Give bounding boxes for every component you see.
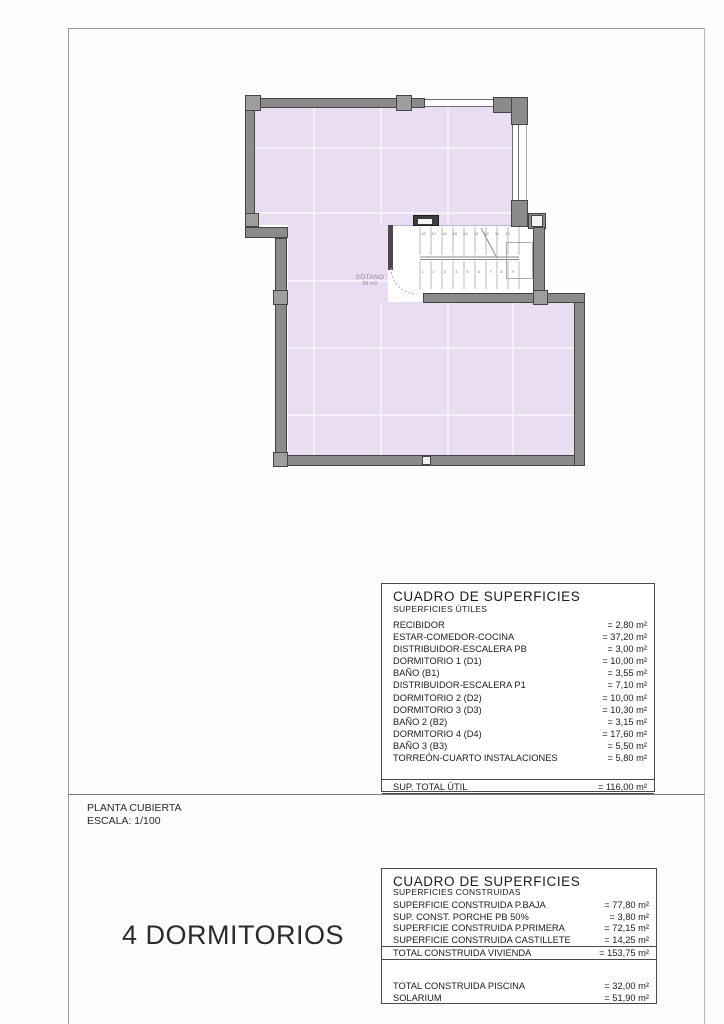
- roof-tile-line: [288, 347, 575, 349]
- roof-tile-line: [313, 107, 315, 225]
- table-rows-extra: TOTAL CONSTRUIDA PISCINA = 32,00 m² SOLA…: [393, 981, 649, 1004]
- row-label: BAÑO 3 (B3): [393, 740, 447, 752]
- table-title: CUADRO DE SUPERFICIES: [393, 589, 580, 604]
- plan-title: PLANTA CUBIERTA: [87, 802, 182, 815]
- table-row: DORMITORIO 2 (D2) = 10,00 m²: [393, 692, 647, 704]
- roof-tile-line: [380, 302, 382, 455]
- table-subtitle: SUPERFICIES ÚTILES: [393, 604, 487, 614]
- sheet-border-left: [68, 28, 69, 1024]
- table-row: RECIBIDOR = 2,80 m²: [393, 619, 647, 631]
- table-row: SUPERFICIE CONSTRUIDA P.PRIMERA = 72,15 …: [393, 923, 649, 935]
- column-post: [245, 95, 261, 111]
- row-label: TORREÓN-CUARTO INSTALACIONES: [393, 752, 558, 764]
- row-value: = 2,80 m²: [607, 619, 647, 631]
- row-label: DORMITORIO 1 (D1): [393, 655, 482, 667]
- row-label: RECIBIDOR: [393, 619, 445, 631]
- roof-tile-line: [288, 414, 575, 416]
- row-label: BAÑO 2 (B2): [393, 716, 447, 728]
- row-label: DORMITORIO 2 (D2): [393, 692, 482, 704]
- row-label: DORMITORIO 4 (D4): [393, 728, 482, 740]
- row-value: = 17,60 m²: [602, 728, 647, 740]
- table-row: DISTRIBUIDOR-ESCALERA P1 = 7,10 m²: [393, 679, 647, 691]
- table-rows: RECIBIDOR = 2,80 m² ESTAR-COMEDOR-COCINA…: [393, 619, 647, 764]
- total-value: = 153,75 m²: [599, 948, 649, 958]
- row-label: SUPERFICIE CONSTRUIDA P.PRIMERA: [393, 923, 565, 935]
- row-label: SUPERFICIE CONSTRUIDA P.BAJA: [393, 900, 546, 912]
- table-total-row: SUP. TOTAL ÚTIL = 116,00 m²: [382, 779, 654, 794]
- wall-mid-horizontal: [423, 293, 585, 303]
- row-label: DISTRIBUIDOR-ESCALERA P1: [393, 679, 526, 691]
- plan-caption: PLANTA CUBIERTA ESCALA: 1/100: [87, 802, 182, 828]
- row-value: = 5,50 m²: [607, 740, 647, 752]
- row-label: SUPERFICIE CONSTRUIDA CASTILLETE: [393, 935, 571, 947]
- plan-scale: ESCALA: 1/100: [87, 815, 182, 828]
- door-marker-inner: [418, 219, 432, 224]
- facade-edge-line: [526, 125, 527, 201]
- table-row: SUPERFICIE CONSTRUIDA P.BAJA = 77,80 m²: [393, 900, 649, 912]
- wall-stair-right: [533, 227, 545, 293]
- total-label: TOTAL CONSTRUIDA VIVIENDA: [393, 948, 531, 958]
- table-row: TORREÓN-CUARTO INSTALACIONES = 5,80 m²: [393, 752, 647, 764]
- row-label: DORMITORIO 3 (D3): [393, 704, 482, 716]
- row-value: = 14,25 m²: [604, 935, 649, 947]
- table-row: BAÑO 2 (B2) = 3,15 m²: [393, 716, 647, 728]
- column-post: [273, 290, 288, 305]
- bedrooms-label: 4 DORMITORIOS: [122, 920, 344, 951]
- wall-notch: [245, 227, 288, 238]
- total-value: = 116,00 m²: [598, 782, 647, 792]
- table-total-row: TOTAL CONSTRUIDA VIVIENDA = 153,75 m²: [382, 946, 656, 960]
- roof-area-lower: [288, 302, 575, 455]
- table-row: BAÑO (B1) = 3,55 m²: [393, 667, 647, 679]
- row-value: = 3,55 m²: [607, 667, 647, 679]
- room-area-label: 69 m2: [337, 281, 403, 287]
- row-value: = 3,80 m²: [609, 912, 649, 924]
- roof-tile-line: [447, 302, 449, 455]
- wall-marker: [422, 456, 431, 465]
- floor-plan: 18 17 16 15 14 13 12 11 10 1 2 3 4 5 6 7…: [245, 95, 590, 470]
- row-value: = 5,80 m²: [607, 752, 647, 764]
- row-value: = 51,90 m²: [604, 993, 649, 1005]
- row-label: ESTAR-COMEDOR-COCINA: [393, 631, 514, 643]
- roof-tile-line: [313, 302, 315, 455]
- sheet-section-divider: [68, 794, 705, 795]
- wall-right-lower: [574, 295, 585, 466]
- row-value: = 7,10 m²: [607, 679, 647, 691]
- row-value: = 10,00 m²: [602, 655, 647, 667]
- row-value: = 72,15 m²: [604, 923, 649, 935]
- drawing-sheet: 18 17 16 15 14 13 12 11 10 1 2 3 4 5 6 7…: [0, 0, 724, 1024]
- window-opening-top: [425, 99, 493, 107]
- stair-step-numbers-lower: 1 2 3 4 5 6 7 8 9: [421, 269, 517, 275]
- wall-corner-ne: [511, 97, 528, 125]
- roof-tile-line: [255, 212, 513, 214]
- row-value: = 10,00 m²: [602, 692, 647, 704]
- roof-tile-line: [313, 225, 315, 302]
- total-label: SUP. TOTAL ÚTIL: [393, 782, 467, 792]
- row-label: BAÑO (B1): [393, 667, 440, 679]
- table-rows: SUPERFICIE CONSTRUIDA P.BAJA = 77,80 m² …: [393, 900, 649, 946]
- roof-tile-line: [380, 107, 382, 225]
- roof-tile-line: [255, 147, 513, 149]
- row-value: = 10,30 m²: [602, 704, 647, 716]
- table-row: DORMITORIO 3 (D3) = 10,30 m²: [393, 704, 647, 716]
- column-post: [245, 213, 259, 227]
- sheet-border-top: [68, 28, 705, 29]
- row-value: = 3,00 m²: [607, 643, 647, 655]
- row-value: = 77,80 m²: [604, 900, 649, 912]
- table-row: DORMITORIO 4 (D4) = 17,60 m²: [393, 728, 647, 740]
- table-row: ESTAR-COMEDOR-COCINA = 37,20 m²: [393, 631, 647, 643]
- window-opening-right: [512, 125, 519, 201]
- sheet-border-right: [704, 28, 705, 1024]
- column-post: [396, 95, 412, 111]
- table-row: SUPERFICIE CONSTRUIDA CASTILLETE = 14,25…: [393, 935, 649, 947]
- row-label: SOLARIUM: [393, 993, 442, 1005]
- column-post: [533, 290, 548, 305]
- roof-area-upper: [255, 107, 513, 225]
- row-value: = 3,15 m²: [607, 716, 647, 728]
- row-value: = 37,20 m²: [602, 631, 647, 643]
- table-row: SUP. CONST. PORCHE PB 50% = 3,80 m²: [393, 912, 649, 924]
- table-row: DORMITORIO 1 (D1) = 10,00 m²: [393, 655, 647, 667]
- stair-step-numbers-upper: 18 17 16 15 14 13 12 11 10: [421, 231, 517, 237]
- table-row: DISTRIBUIDOR-ESCALERA PB = 3,00 m²: [393, 643, 647, 655]
- wall-left-lower: [275, 238, 287, 466]
- roof-area-middle: [288, 225, 388, 302]
- table-subtitle: SUPERFICIES CONSTRUIDAS: [393, 887, 521, 897]
- row-label: DISTRIBUIDOR-ESCALERA PB: [393, 643, 527, 655]
- row-label: SUP. CONST. PORCHE PB 50%: [393, 912, 529, 924]
- row-label: TOTAL CONSTRUIDA PISCINA: [393, 981, 525, 993]
- table-row: SOLARIUM = 51,90 m²: [393, 993, 649, 1005]
- roof-tile-line: [447, 107, 449, 225]
- surface-table-utiles: CUADRO DE SUPERFICIES SUPERFICIES ÚTILES…: [381, 583, 655, 792]
- surface-table-construidas: CUADRO DE SUPERFICIES SUPERFICIES CONSTR…: [381, 868, 657, 1004]
- row-value: = 32,00 m²: [604, 981, 649, 993]
- room-label-sotano: SÓTANO 69 m2: [337, 274, 403, 288]
- table-row: BAÑO 3 (B3) = 5,50 m²: [393, 740, 647, 752]
- roof-tile-line: [512, 302, 514, 455]
- column-post: [273, 452, 288, 467]
- room-name: SÓTANO: [337, 274, 403, 281]
- table-row: TOTAL CONSTRUIDA PISCINA = 32,00 m²: [393, 981, 649, 993]
- wall-right-mid: [511, 200, 528, 227]
